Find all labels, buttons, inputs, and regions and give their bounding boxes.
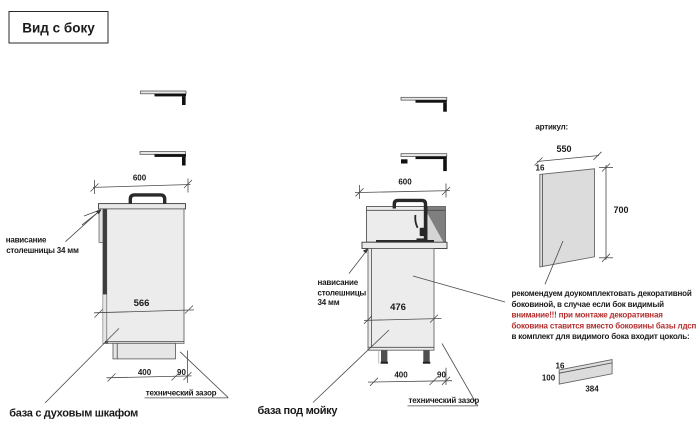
- svg-text:нависание: нависание: [6, 236, 47, 245]
- svg-text:384: 384: [585, 384, 599, 393]
- svg-text:нависание: нависание: [318, 278, 359, 287]
- svg-text:в комплект для видимого бока в: в комплект для видимого бока входит цоко…: [512, 332, 690, 341]
- svg-text:400: 400: [138, 368, 152, 377]
- svg-text:600: 600: [133, 174, 147, 183]
- svg-text:база с духовым шкафом: база с духовым шкафом: [9, 408, 138, 420]
- svg-text:боковиной, в случае если бок в: боковиной, в случае если бок видимый: [512, 300, 665, 309]
- svg-text:Вид с боку: Вид с боку: [22, 21, 95, 36]
- svg-text:400: 400: [394, 371, 408, 380]
- svg-text:100: 100: [542, 373, 556, 382]
- svg-text:90: 90: [437, 371, 446, 380]
- svg-text:технический зазор: технический зазор: [146, 388, 217, 397]
- svg-text:рекомендуем доукомплектовать д: рекомендуем доукомплектовать декоративно…: [512, 289, 692, 298]
- svg-text:700: 700: [614, 205, 629, 215]
- svg-text:артикул:: артикул:: [535, 123, 568, 132]
- svg-text:технический зазор: технический зазор: [409, 396, 480, 405]
- svg-text:столешницы 34 мм: столешницы 34 мм: [6, 246, 79, 255]
- svg-text:16: 16: [536, 164, 545, 173]
- svg-text:боковина ставится вместо боков: боковина ставится вместо боковины базы л…: [512, 321, 697, 330]
- svg-text:столешницы: столешницы: [318, 288, 367, 297]
- svg-text:34 мм: 34 мм: [318, 298, 340, 307]
- svg-text:600: 600: [398, 178, 412, 187]
- svg-text:16: 16: [556, 361, 565, 370]
- svg-text:566: 566: [134, 298, 150, 309]
- svg-text:476: 476: [390, 302, 406, 313]
- svg-text:база под мойку: база под мойку: [258, 405, 339, 417]
- svg-text:внимание!!! при монтаже декора: внимание!!! при монтаже декоративная: [512, 311, 664, 320]
- svg-text:550: 550: [556, 144, 571, 154]
